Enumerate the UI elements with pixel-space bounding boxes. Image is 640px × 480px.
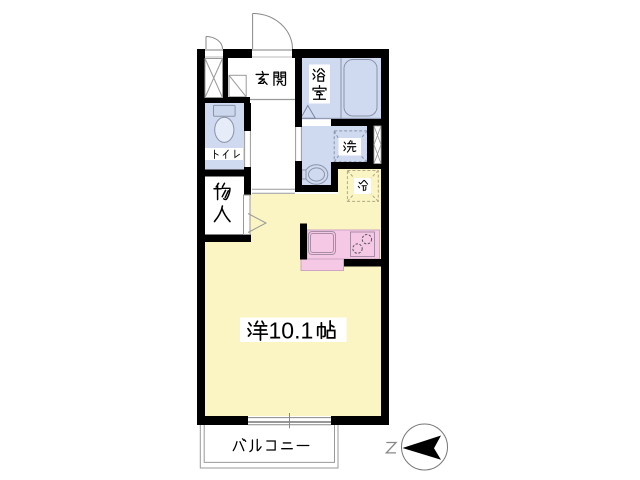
svg-text:10.1: 10.1 (269, 317, 314, 343)
